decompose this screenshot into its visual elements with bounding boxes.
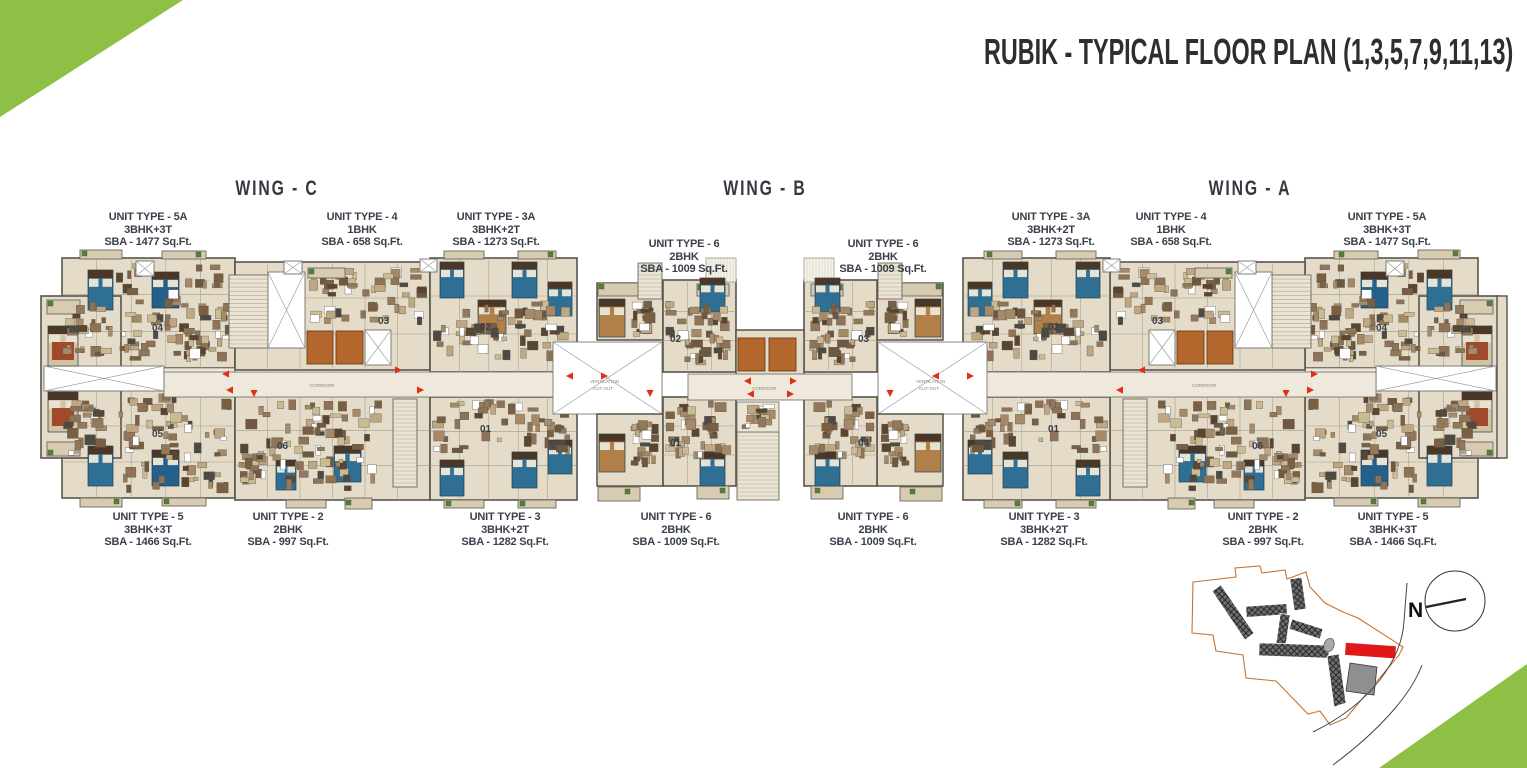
svg-text:CUT-OUT: CUT-OUT (919, 386, 939, 391)
svg-text:VENTILATION: VENTILATION (916, 379, 945, 384)
svg-text:04: 04 (1376, 323, 1388, 334)
svg-text:CORRIDOR: CORRIDOR (752, 386, 777, 391)
svg-text:04: 04 (152, 323, 164, 334)
svg-text:N: N (1408, 599, 1423, 622)
svg-text:02: 02 (1048, 322, 1060, 333)
svg-text:01: 01 (670, 438, 682, 449)
svg-text:CORRIDOR: CORRIDOR (1192, 383, 1217, 388)
svg-text:03: 03 (1152, 316, 1164, 327)
svg-text:02: 02 (670, 334, 682, 345)
svg-text:CUT-OUT: CUT-OUT (593, 386, 613, 391)
svg-text:04: 04 (858, 438, 870, 449)
svg-text:CORRIDOR: CORRIDOR (310, 383, 335, 388)
svg-text:02: 02 (480, 322, 492, 333)
svg-text:05: 05 (152, 429, 164, 440)
svg-text:05: 05 (1376, 429, 1388, 440)
svg-text:01: 01 (1048, 424, 1060, 435)
svg-text:03: 03 (858, 334, 870, 345)
svg-text:VENTILATION: VENTILATION (590, 379, 619, 384)
svg-text:03: 03 (378, 316, 390, 327)
svg-text:01: 01 (480, 424, 492, 435)
svg-text:06: 06 (1252, 441, 1264, 452)
svg-text:06: 06 (277, 441, 289, 452)
